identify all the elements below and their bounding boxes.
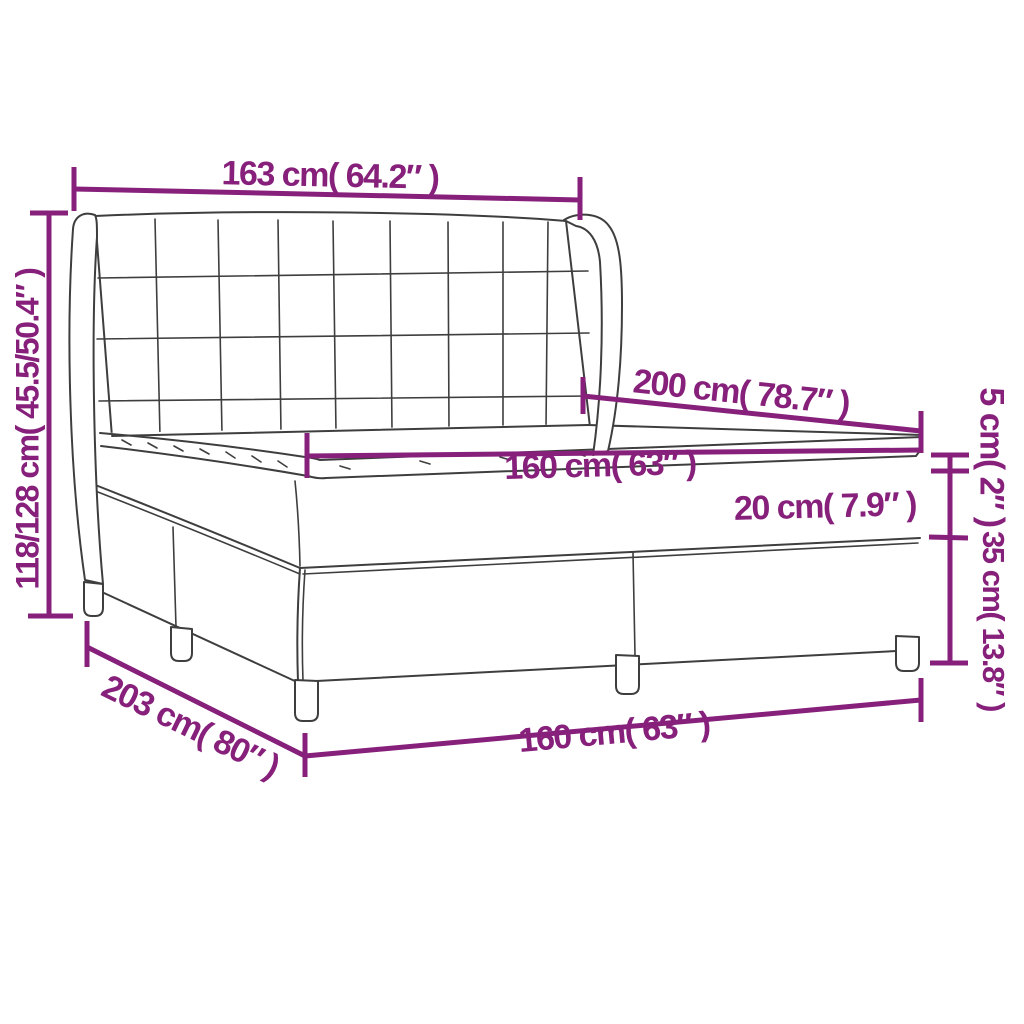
- headboard-left-wing: [69, 214, 103, 584]
- bed-drawing: [69, 212, 923, 721]
- dim-label-base-height: 35 cm( 13.8″ ): [975, 531, 1011, 711]
- dim-label-mattress-thickness: 20 cm( 7.9″ ): [734, 485, 917, 529]
- dim-label-headboard-width: 163 cm( 64.2″ ): [221, 154, 439, 198]
- bed-leg: [616, 655, 639, 694]
- headboard-panel: [95, 212, 590, 437]
- dim-label-mattress-width: 160 cm( 63″ ): [504, 444, 696, 488]
- bed-body: [80, 424, 923, 683]
- bed-leg: [171, 627, 192, 661]
- bed-leg: [84, 582, 103, 616]
- dim-label-overall-height: 118/128 cm( 45.5/50.4″ ): [10, 269, 47, 590]
- bed-leg: [896, 636, 919, 671]
- diagram-stage: 163 cm( 64.2″ ) 118/128 cm( 45.5/50.4″ )…: [0, 0, 1024, 1024]
- dim-label-topper-thickness: 5 cm( 2″ ): [972, 387, 1011, 526]
- bed-leg: [295, 680, 318, 721]
